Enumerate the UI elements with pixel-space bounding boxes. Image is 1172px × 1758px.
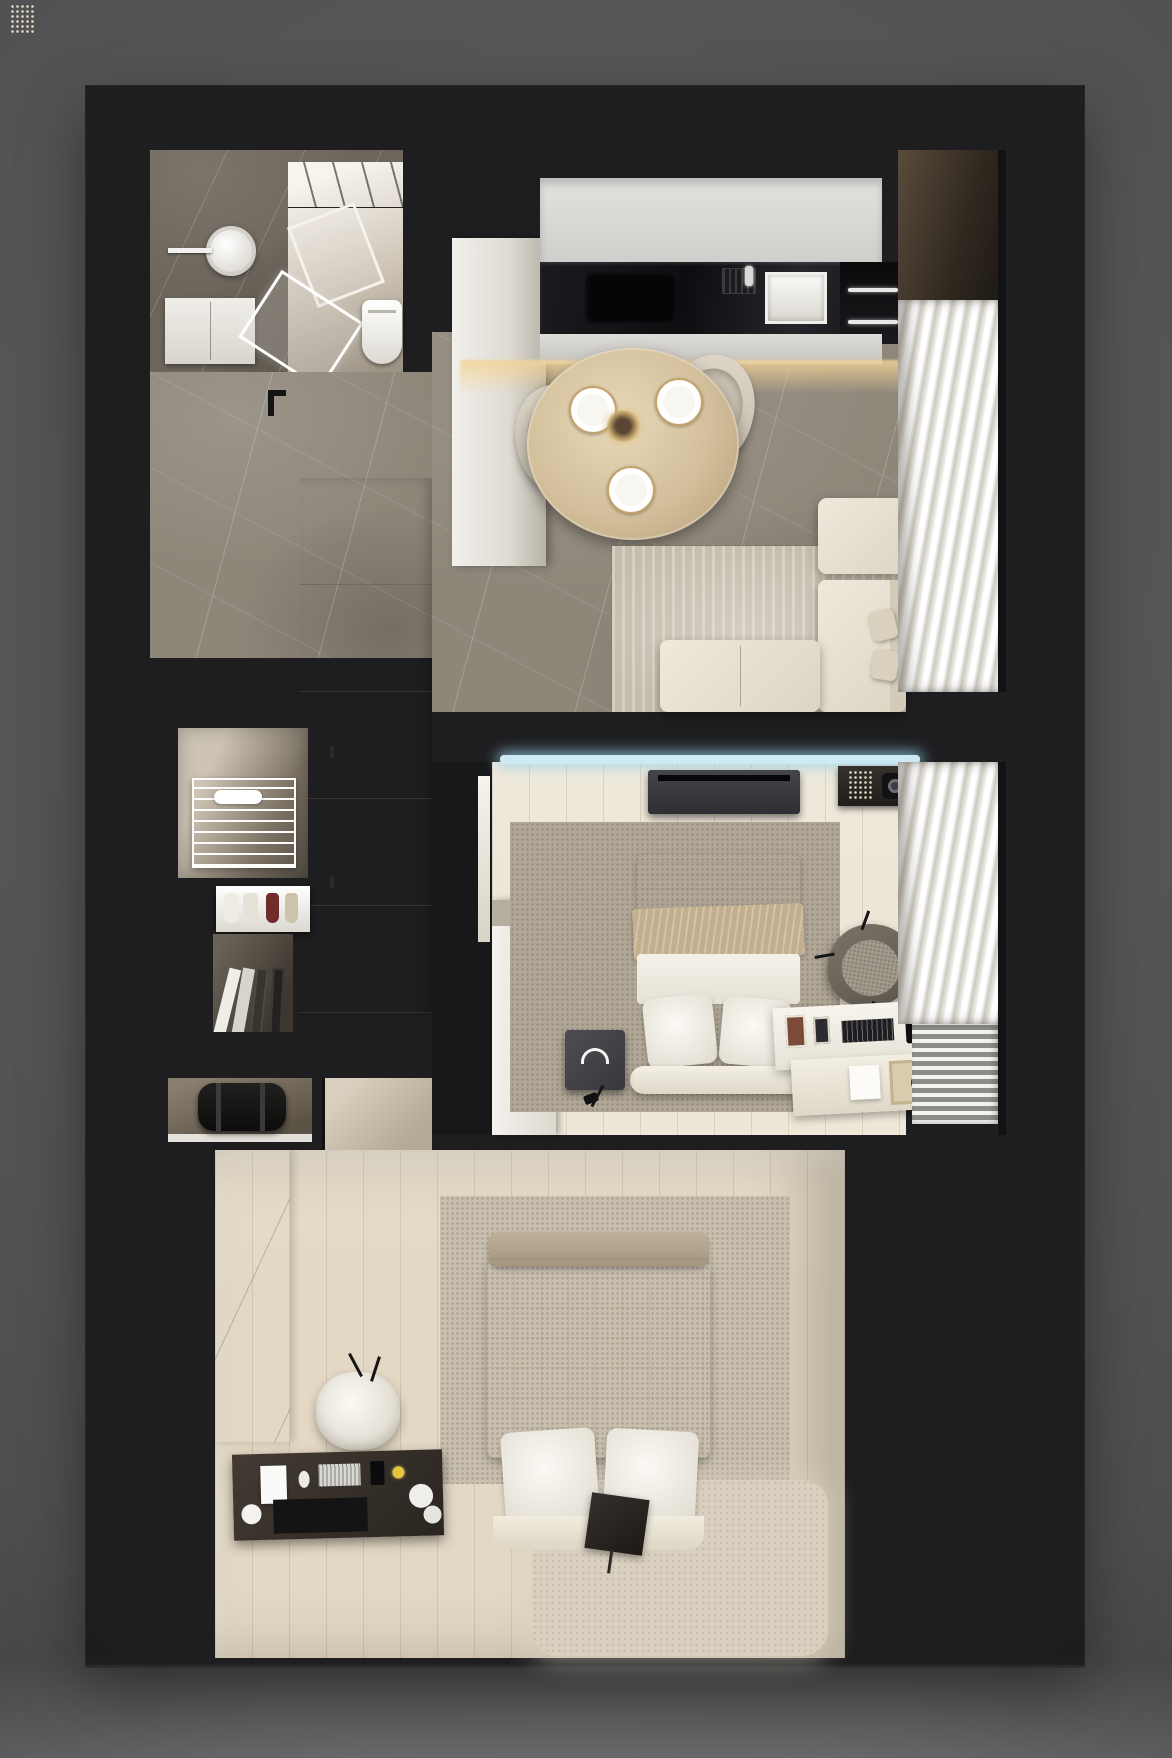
kitchen-sink bbox=[765, 272, 827, 324]
rack-arm bbox=[214, 790, 262, 804]
tan-throw-blanket bbox=[632, 903, 805, 961]
built-in-ovens bbox=[840, 262, 906, 344]
floorplan-render bbox=[0, 0, 1172, 1758]
bedroom1-left-wall bbox=[432, 762, 492, 1135]
keyboard bbox=[841, 1018, 894, 1043]
tablet bbox=[260, 1465, 287, 1504]
mouse bbox=[298, 1471, 309, 1488]
sofa-pillow bbox=[870, 648, 900, 682]
leaning-files-niche bbox=[213, 934, 293, 1032]
quilted-duvet bbox=[487, 1260, 710, 1458]
armchair-cushion bbox=[837, 935, 904, 1000]
sink-faucet bbox=[745, 266, 753, 286]
headphones bbox=[581, 1048, 609, 1064]
media-wall-led-strip bbox=[500, 755, 920, 764]
window-frame-edge bbox=[998, 150, 1006, 692]
round-lamp bbox=[241, 1504, 262, 1525]
place-setting bbox=[655, 378, 703, 426]
sneaker bbox=[243, 893, 258, 923]
white-box bbox=[849, 1065, 881, 1101]
round-dining-table bbox=[527, 348, 739, 540]
duffel-bag bbox=[198, 1083, 286, 1131]
dark-tray-with-tassel bbox=[584, 1492, 649, 1556]
bed-pillow bbox=[500, 1427, 600, 1525]
sofa-main-section bbox=[818, 580, 906, 712]
small-floor-lamp bbox=[584, 1082, 606, 1112]
bedroom1-radiator bbox=[912, 1024, 1000, 1124]
bed-duvet bbox=[637, 954, 800, 1004]
upper-cabinets bbox=[540, 178, 882, 264]
round-lamp bbox=[409, 1484, 434, 1509]
backdrop-floor-sheen bbox=[0, 1660, 1172, 1758]
table-centerpiece bbox=[605, 410, 641, 442]
tv-console bbox=[648, 770, 800, 814]
smartphone bbox=[370, 1461, 385, 1485]
decor-plant bbox=[848, 770, 872, 800]
laptop bbox=[273, 1497, 368, 1533]
nightstand-cube bbox=[565, 1030, 625, 1090]
living-curtains bbox=[898, 300, 1006, 692]
shoe-shelf bbox=[216, 886, 310, 932]
duffel-shelf-cell bbox=[168, 1078, 312, 1142]
vestibule-floor bbox=[322, 1078, 432, 1150]
bedroom2-desk bbox=[232, 1449, 444, 1540]
door-swing-mark bbox=[268, 390, 294, 420]
place-setting bbox=[607, 466, 655, 514]
bedroom2-paneled-wall bbox=[215, 1150, 290, 1442]
window-sill-dark bbox=[898, 150, 1006, 302]
hall-wardrobe bbox=[300, 478, 432, 1015]
photo-frame bbox=[785, 1015, 807, 1048]
sofa-ottoman bbox=[818, 498, 906, 574]
heel-shoe bbox=[266, 893, 279, 923]
towel-bar bbox=[168, 248, 212, 253]
bathroom-ceiling-panel bbox=[288, 162, 403, 208]
sneaker bbox=[224, 893, 239, 923]
keyboard bbox=[318, 1463, 361, 1486]
window-frame-edge bbox=[998, 762, 1006, 1135]
duck-figurine bbox=[392, 1466, 404, 1478]
round-washbasin bbox=[206, 226, 256, 276]
closet-rack-cell bbox=[178, 728, 308, 878]
round-lamp bbox=[423, 1505, 441, 1523]
plant-sprig bbox=[10, 4, 34, 34]
photo-frame bbox=[813, 1017, 830, 1045]
sofa-chaise bbox=[660, 640, 820, 712]
laptop-screen bbox=[277, 1501, 364, 1529]
induction-cooktop bbox=[585, 272, 677, 324]
white-pouf-table bbox=[316, 1372, 400, 1450]
toilet bbox=[362, 300, 402, 364]
bedroom1-curtains bbox=[898, 762, 1006, 1024]
heel-shoe bbox=[285, 893, 298, 923]
bedroom1-door bbox=[478, 776, 490, 942]
bed-pillow bbox=[642, 993, 719, 1070]
